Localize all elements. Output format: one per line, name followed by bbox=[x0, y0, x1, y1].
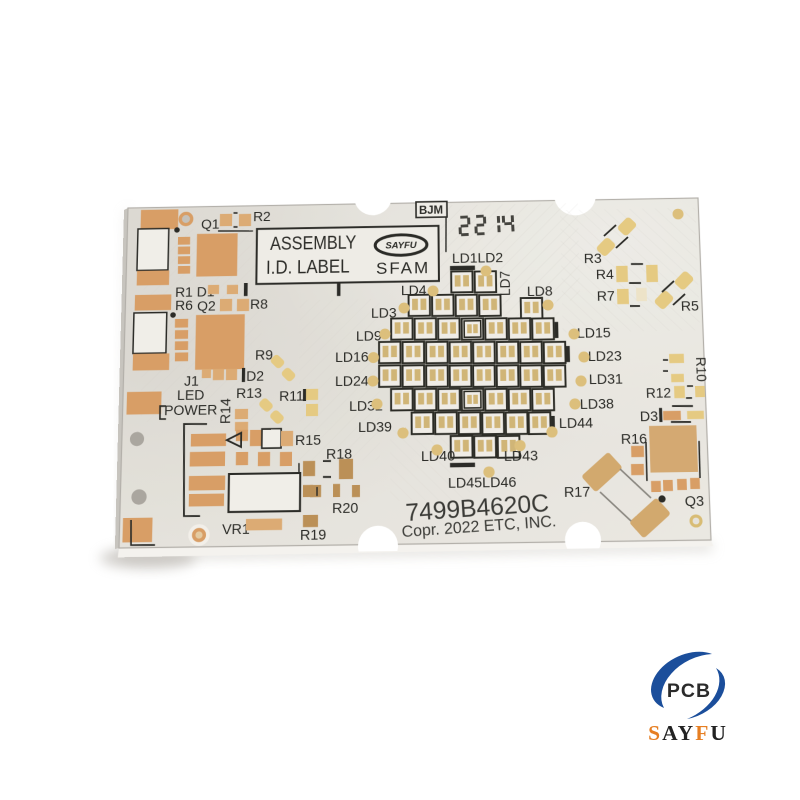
svg-text:PCB: PCB bbox=[667, 680, 711, 702]
svg-text:SAYFU: SAYFU bbox=[648, 721, 728, 745]
